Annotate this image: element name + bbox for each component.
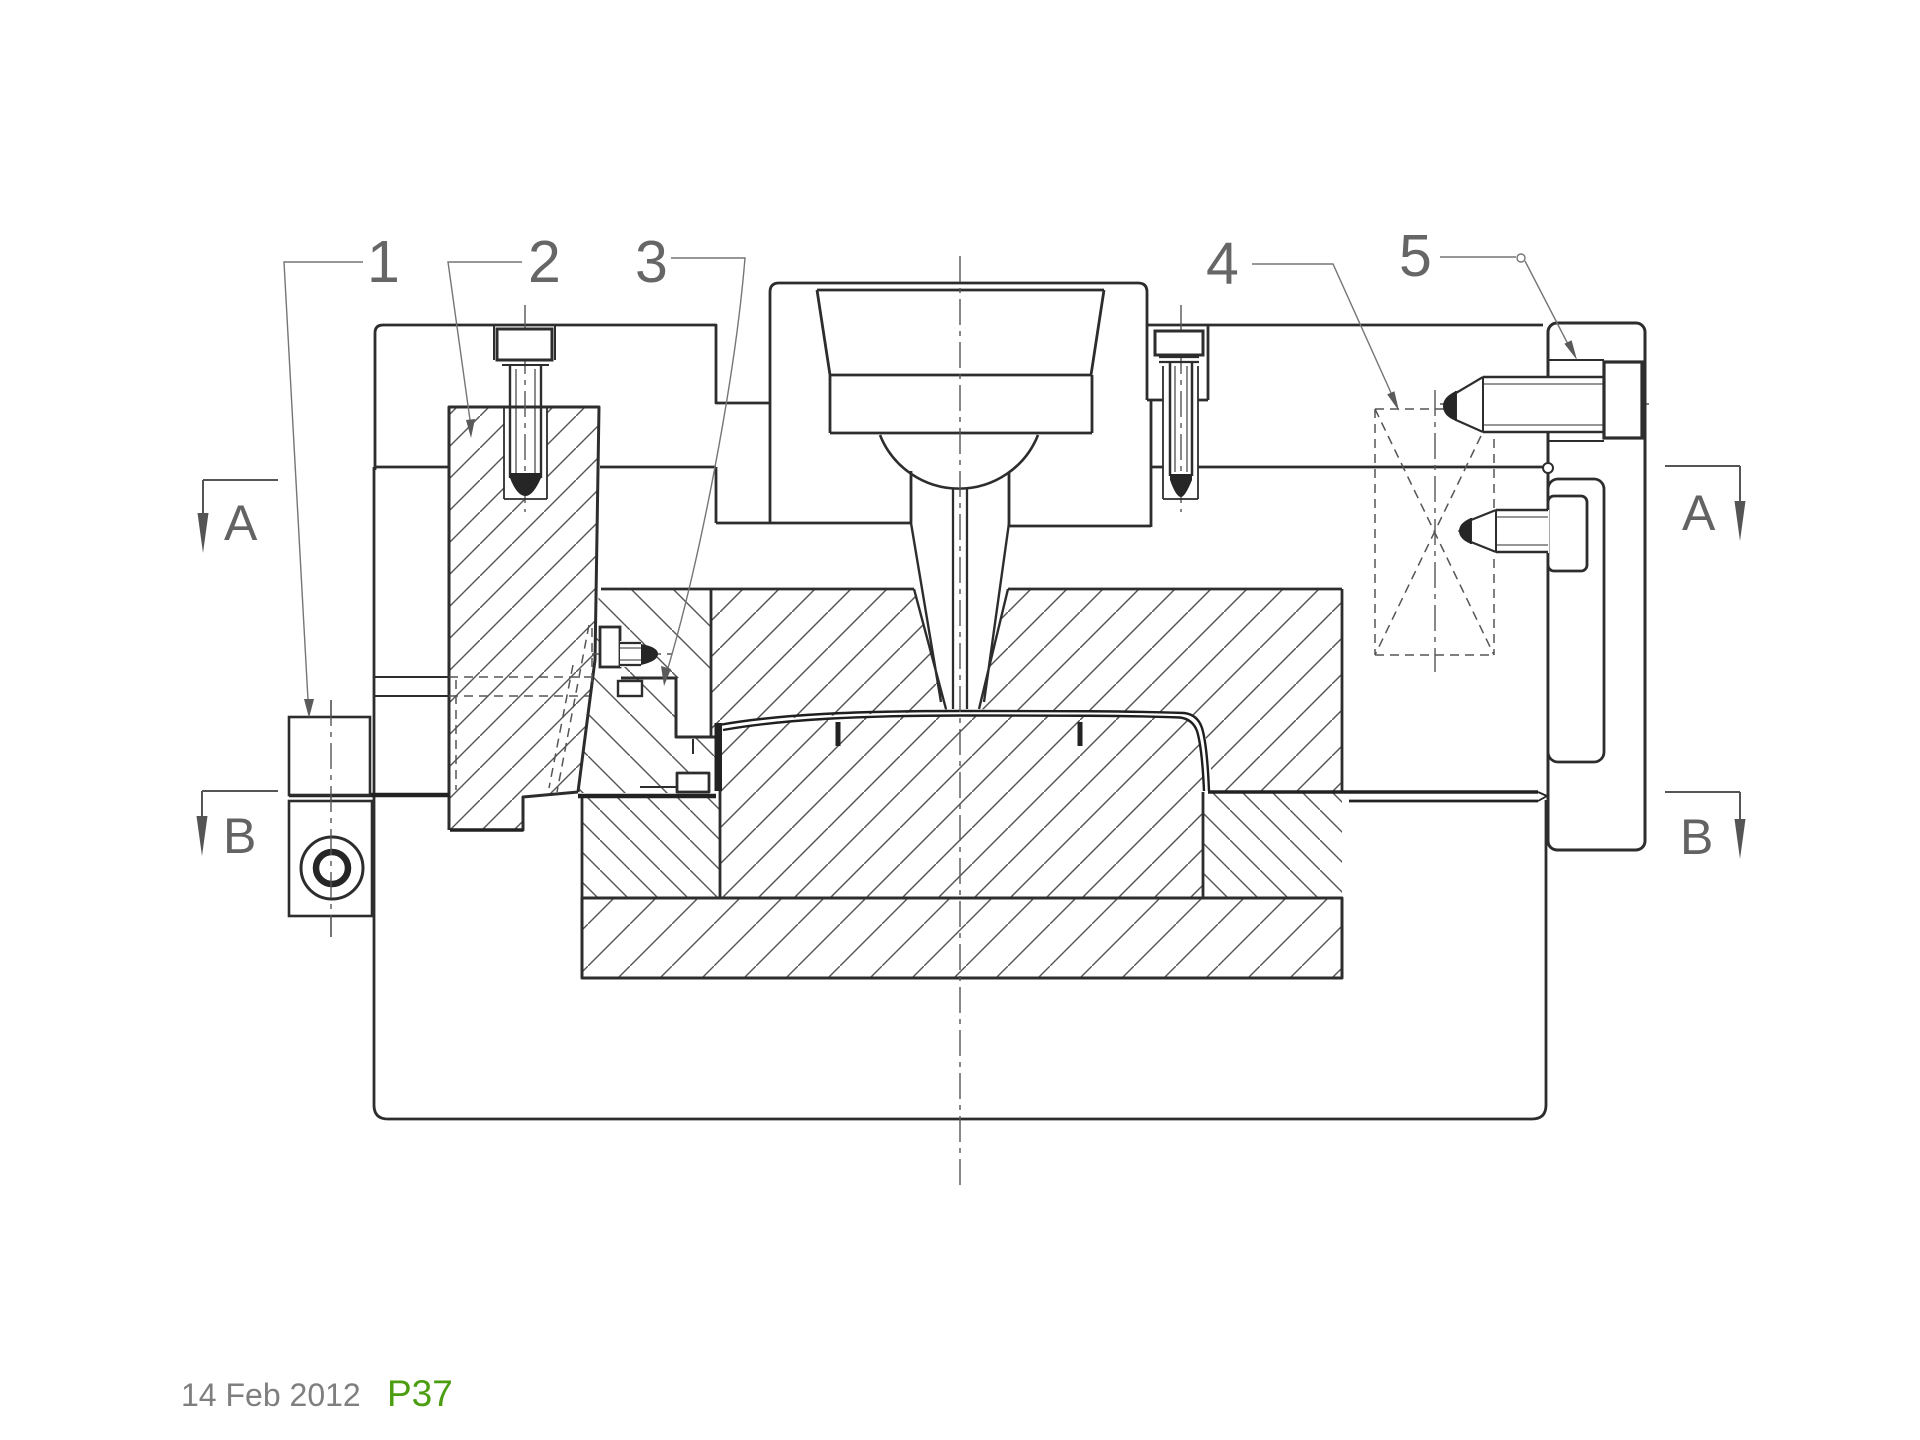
svg-text:A: A [1682, 485, 1716, 541]
svg-text:3: 3 [635, 229, 668, 295]
svg-text:4: 4 [1206, 231, 1239, 297]
svg-text:5: 5 [1399, 223, 1432, 289]
svg-text:1: 1 [367, 229, 400, 295]
svg-text:14 Feb 2012: 14 Feb 2012 [181, 1377, 361, 1413]
svg-text:B: B [223, 808, 256, 864]
svg-text:2: 2 [528, 229, 561, 295]
svg-text:A: A [224, 495, 258, 551]
svg-text:B: B [1680, 809, 1713, 865]
svg-text:P37: P37 [387, 1373, 453, 1414]
